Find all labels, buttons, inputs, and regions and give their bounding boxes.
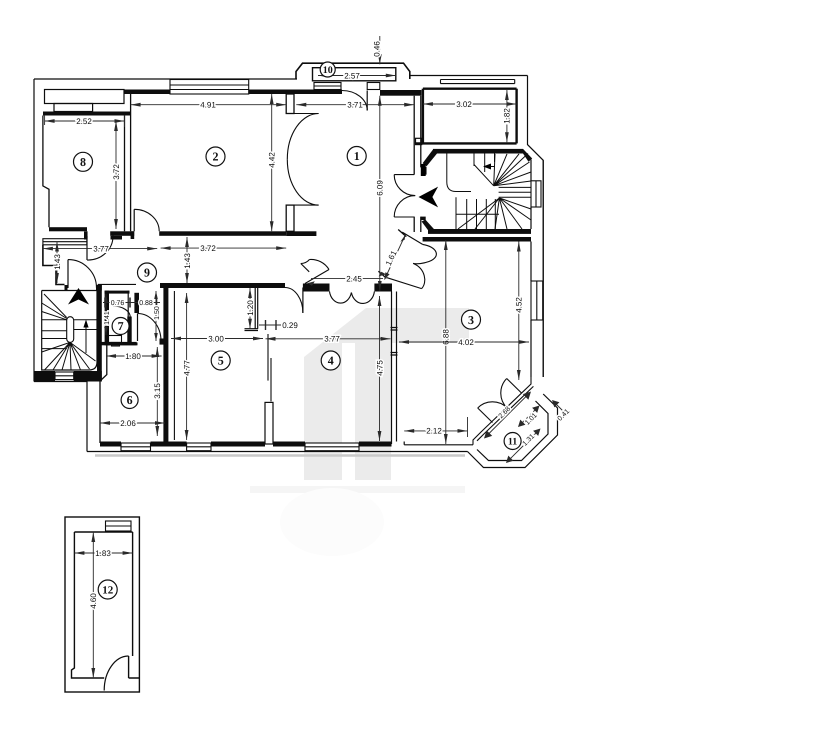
svg-text:1: 1	[354, 149, 360, 163]
svg-text:7: 7	[118, 319, 124, 333]
svg-text:0.88: 0.88	[139, 300, 153, 307]
svg-text:4.91: 4.91	[200, 101, 216, 110]
svg-text:2.52: 2.52	[76, 117, 92, 126]
svg-text:11: 11	[508, 437, 517, 448]
svg-text:6: 6	[127, 393, 133, 407]
svg-text:4.42: 4.42	[268, 152, 277, 168]
svg-text:3: 3	[468, 313, 474, 327]
svg-text:1.50: 1.50	[154, 306, 161, 320]
svg-text:2.12: 2.12	[426, 427, 442, 436]
svg-text:3.72: 3.72	[200, 244, 216, 253]
svg-text:10: 10	[323, 65, 333, 76]
svg-text:6.09: 6.09	[376, 180, 385, 196]
svg-text:3.72: 3.72	[112, 164, 121, 180]
svg-text:4: 4	[328, 354, 334, 368]
svg-text:4.60: 4.60	[89, 593, 98, 609]
svg-text:8: 8	[80, 155, 86, 169]
svg-text:1.83: 1.83	[95, 549, 111, 558]
svg-text:4.02: 4.02	[458, 338, 474, 347]
svg-text:12: 12	[102, 585, 114, 597]
svg-text:5: 5	[218, 354, 224, 368]
svg-text:2.45: 2.45	[346, 274, 362, 283]
svg-text:4.75: 4.75	[375, 360, 384, 376]
svg-text:0.29: 0.29	[282, 321, 298, 330]
svg-text:1.80: 1.80	[125, 352, 141, 361]
svg-text:3.15: 3.15	[153, 383, 162, 399]
svg-text:1.20: 1.20	[246, 300, 255, 316]
svg-text:1.82: 1.82	[503, 108, 512, 124]
svg-text:3.77: 3.77	[324, 335, 340, 344]
svg-text:2: 2	[213, 150, 219, 164]
svg-text:1.41: 1.41	[104, 311, 111, 325]
svg-text:3.71: 3.71	[347, 101, 363, 110]
svg-text:2.57: 2.57	[344, 71, 360, 80]
svg-text:9: 9	[144, 266, 150, 280]
svg-text:4.52: 4.52	[515, 297, 524, 313]
svg-text:0.76: 0.76	[111, 300, 125, 307]
svg-text:2.06: 2.06	[120, 419, 136, 428]
svg-text:3.02: 3.02	[456, 100, 472, 109]
svg-text:3.00: 3.00	[208, 334, 224, 343]
svg-text:1.43: 1.43	[183, 253, 192, 269]
svg-text:4.77: 4.77	[182, 360, 191, 376]
svg-text:0.46: 0.46	[372, 41, 381, 57]
svg-text:1.43: 1.43	[53, 254, 62, 270]
svg-text:3.77: 3.77	[93, 244, 109, 253]
